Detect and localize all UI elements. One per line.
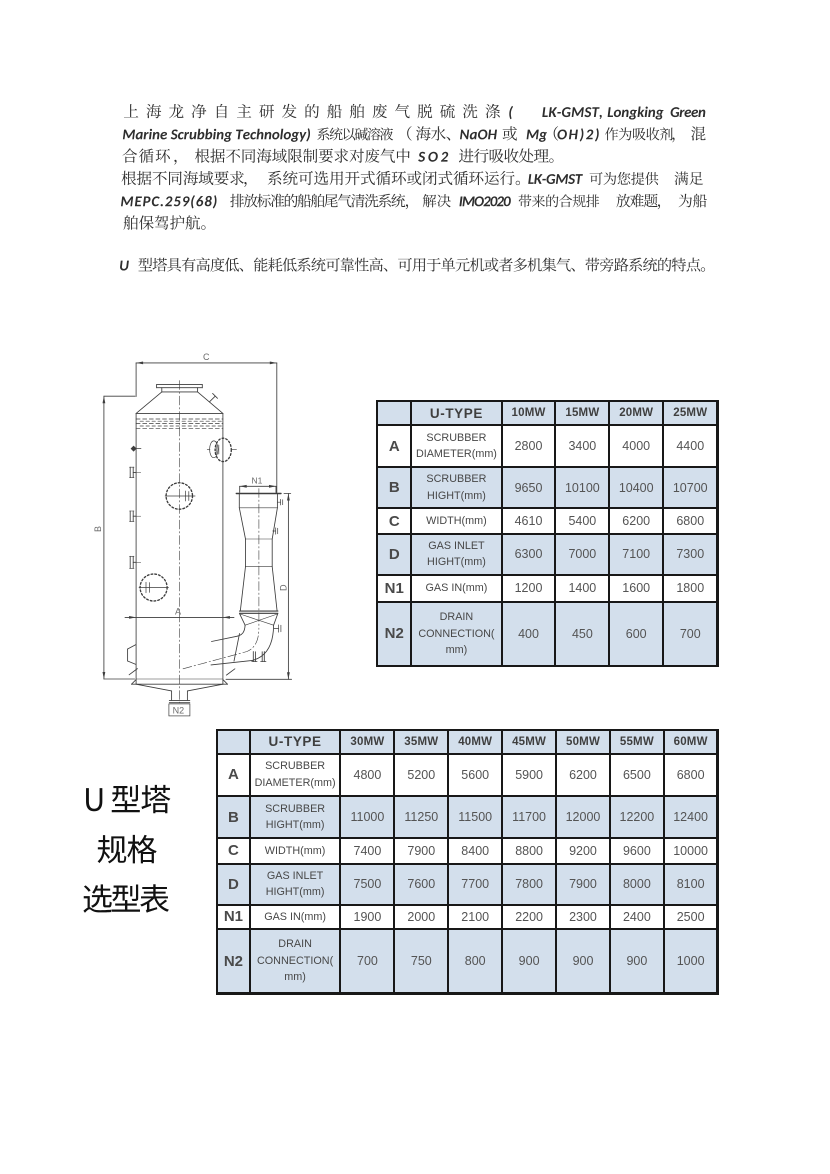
svg-text:D: D [279,584,289,591]
svg-text:N1: N1 [252,476,263,486]
svg-text:A: A [175,607,181,617]
svg-text:B: B [93,526,103,532]
svg-text:N2: N2 [173,705,185,715]
svg-text:C: C [203,352,210,362]
